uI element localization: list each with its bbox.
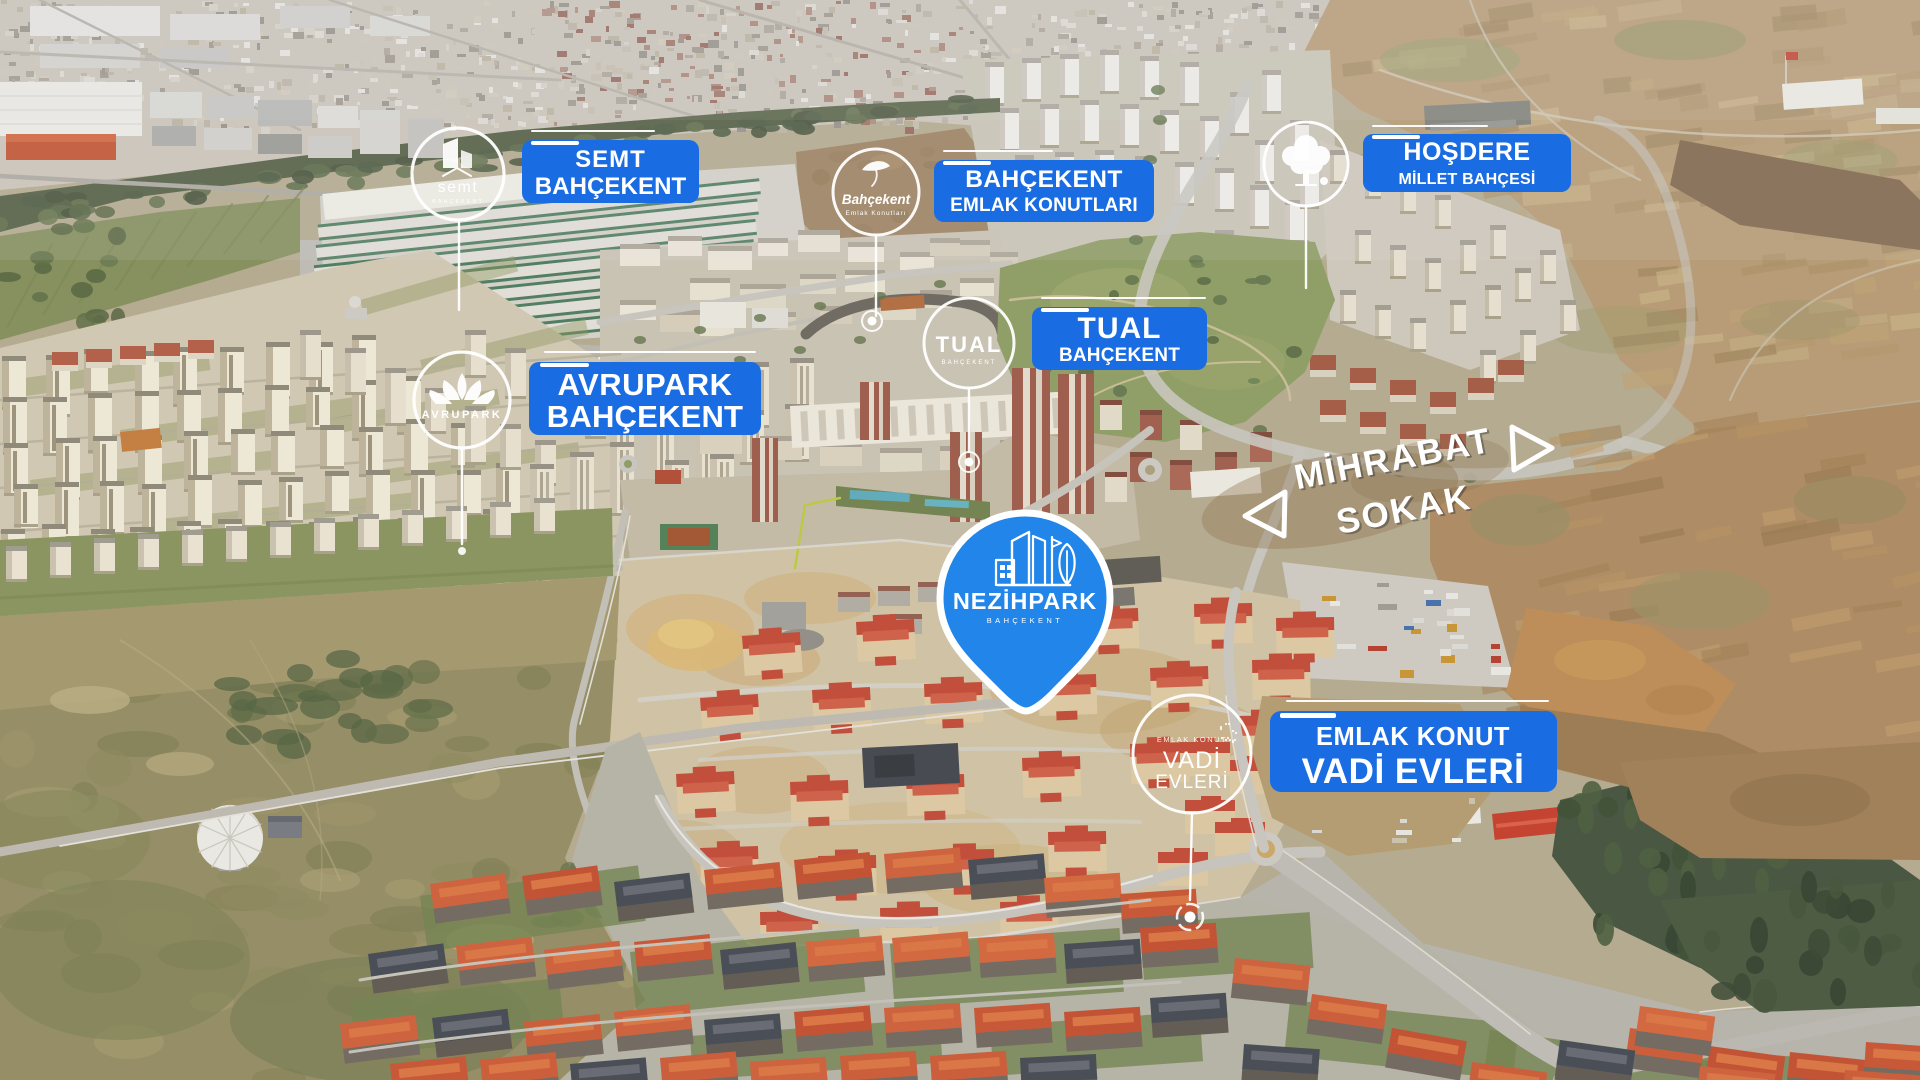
- svg-text:EMLAK KONUT: EMLAK KONUT: [1316, 723, 1510, 751]
- svg-text:BAHÇEKENT: BAHÇEKENT: [1059, 345, 1180, 366]
- svg-text:EVLERİ: EVLERİ: [1155, 772, 1229, 793]
- svg-text:Emlak Konutları: Emlak Konutları: [846, 210, 907, 217]
- svg-text:SEMT: SEMT: [575, 146, 646, 173]
- svg-text:EMLAK KONUTLARI: EMLAK KONUTLARI: [950, 195, 1138, 216]
- svg-text:BAHÇEKENT: BAHÇEKENT: [987, 616, 1063, 625]
- svg-text:BAHÇEKENT: BAHÇEKENT: [535, 173, 687, 200]
- svg-text:HOŞDERE: HOŞDERE: [1403, 138, 1530, 166]
- svg-text:semt: semt: [438, 179, 479, 196]
- svg-text:NEZİHPARK: NEZİHPARK: [953, 588, 1097, 614]
- svg-text:BAHÇEKENT: BAHÇEKENT: [432, 199, 484, 205]
- svg-text:TUAL: TUAL: [1078, 312, 1162, 345]
- svg-text:AVRUPARK: AVRUPARK: [557, 367, 732, 402]
- svg-text:EMLAK KONUT: EMLAK KONUT: [1157, 735, 1227, 744]
- svg-text:MİLLET BAHÇESİ: MİLLET BAHÇESİ: [1398, 170, 1535, 188]
- svg-text:VADİ EVLERİ: VADİ EVLERİ: [1302, 752, 1525, 791]
- svg-text:VADİ: VADİ: [1163, 747, 1221, 774]
- svg-text:BAHÇEKENT: BAHÇEKENT: [547, 399, 743, 434]
- svg-text:Bahçekent: Bahçekent: [842, 192, 911, 207]
- svg-text:BAHÇEKENT: BAHÇEKENT: [942, 360, 997, 366]
- svg-text:BAHÇEKENT: BAHÇEKENT: [965, 166, 1122, 193]
- svg-text:TUAL: TUAL: [936, 332, 1003, 357]
- svg-text:AVRUPARK: AVRUPARK: [422, 409, 503, 421]
